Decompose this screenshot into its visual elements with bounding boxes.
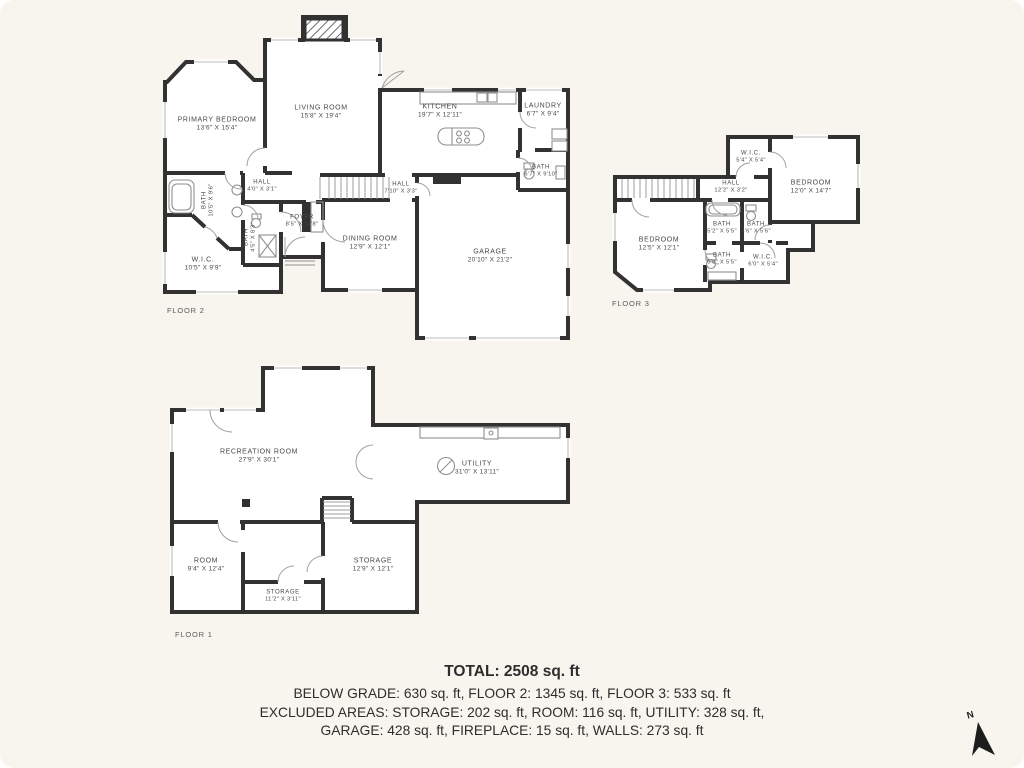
room-label-bedroom-right-f3: BEDROOM 12'0" X 14'7": [791, 180, 832, 195]
washer: [552, 129, 567, 139]
room-name: STORAGE: [353, 558, 394, 565]
room-name: PRIMARY BEDROOM: [178, 117, 257, 124]
room-label-storage-small: STORAGE 11'2" X 3'11": [265, 590, 301, 603]
room-label-bath-tub-f2: BATH 10'5" X 9'6": [202, 183, 215, 216]
summary-line-excluded: EXCLUDED AREAS: STORAGE: 202 sq. ft, ROO…: [0, 704, 1024, 723]
room-label-hall-left-f2: HALL 4'0" X 3'1": [247, 180, 277, 193]
room-dims: 4'5" X 8'3": [251, 222, 257, 252]
room-name: BEDROOM: [639, 237, 680, 244]
room-dims: 9'4" X 12'4": [188, 566, 225, 573]
room-dims: 6'0" X 5'4": [748, 262, 778, 268]
room-label-foyer: FOYER 8'5" X 11'8": [286, 215, 319, 228]
room-name: HALL: [714, 181, 747, 187]
room-label-dining-room: DINING ROOM 12'9" X 12'1": [343, 236, 398, 251]
room-name: W.I.C.: [185, 257, 222, 264]
room-name: HALL: [247, 180, 277, 186]
room-label-wic-top-f3: W.I.C. 5'4" X 5'4": [736, 151, 766, 164]
room-dims: 27'9" X 30'1": [220, 457, 298, 464]
room-label-room-f1: ROOM 9'4" X 12'4": [188, 558, 225, 573]
dryer: [552, 141, 567, 151]
floorplan-page: PRIMARY BEDROOM 13'6" X 15'4" LIVING ROO…: [0, 0, 1024, 768]
room-dims: 7'10" X 3'3": [384, 189, 417, 195]
room-dims: 12'5" X 12'1": [639, 245, 680, 252]
room-name: BEDROOM: [791, 180, 832, 187]
room-label-hall-right-f2: HALL 7'10" X 3'3": [384, 182, 417, 195]
room-label-bath-right-f2: BATH 6'7" X 9'10": [524, 165, 557, 178]
room-label-hall-f3: HALL 12'2" X 3'2": [714, 181, 747, 194]
toilet-tank: [746, 205, 756, 211]
floor2-caption: FLOOR 2: [167, 306, 205, 315]
entry-steps: [285, 261, 315, 265]
room-name: BATH: [707, 253, 737, 259]
room-dims: 5'6" X 5'5": [707, 260, 737, 266]
room-label-utility: UTILITY 31'0" X 13'11": [455, 461, 499, 476]
room-label-bath-small-f2: BATH 4'5" X 8'3": [244, 222, 257, 252]
floor1-plan: [172, 368, 568, 612]
room-dims: 31'0" X 13'11": [455, 469, 499, 476]
kitchen-sink: [477, 93, 487, 102]
floor1-caption: FLOOR 1: [175, 630, 213, 639]
room-name: ROOM: [188, 558, 225, 565]
room-dims: 12'9" X 12'1": [343, 244, 398, 251]
room-name: BATH: [707, 222, 737, 228]
room-label-storage-large: STORAGE 12'9" X 12'1": [353, 558, 394, 573]
room-label-bedroom-left-f3: BEDROOM 12'5" X 12'1": [639, 237, 680, 252]
room-label-primary-bedroom: PRIMARY BEDROOM 13'6" X 15'4": [178, 117, 257, 132]
room-name: BATH: [244, 222, 250, 252]
summary-line-garage: GARAGE: 428 sq. ft, FIREPLACE: 15 sq. ft…: [0, 722, 1024, 741]
room-dims: 4'0" X 3'1": [247, 187, 277, 193]
room-name: LAUNDRY: [524, 103, 562, 110]
room-label-laundry: LAUNDRY 6'7" X 9'4": [524, 103, 562, 118]
room-name: KITCHEN: [418, 104, 462, 111]
room-name: W.I.C.: [748, 255, 778, 261]
room-dims: 5'2" X 5'5": [707, 229, 737, 235]
floor1-outer-walls: [172, 368, 568, 612]
room-dims: 6'7" X 9'10": [524, 172, 557, 178]
room-dims: 11'2" X 3'11": [265, 597, 301, 603]
room-name: DINING ROOM: [343, 236, 398, 243]
room-label-wic-bottom-f3: W.I.C. 6'0" X 5'4": [748, 255, 778, 268]
room-dims: 3'6" X 5'6": [741, 229, 771, 235]
room-dims: 10'5" X 9'6": [209, 183, 215, 216]
room-dims: 5'4" X 5'4": [736, 158, 766, 164]
vanity: [708, 272, 736, 280]
support-post: [242, 499, 250, 507]
room-dims: 12'2" X 3'2": [714, 188, 747, 194]
room-name: BATH: [524, 165, 557, 171]
floor3-caption: FLOOR 3: [612, 299, 650, 308]
kitchen-sink: [488, 93, 497, 102]
room-name: BATH: [202, 183, 208, 216]
room-dims: 8'5" X 11'8": [286, 222, 319, 228]
room-label-wic-f2: W.I.C. 10'5" X 9'9": [185, 257, 222, 272]
summary-total: TOTAL: 2508 sq. ft: [0, 663, 1024, 681]
room-dims: 12'9" X 12'1": [353, 566, 394, 573]
sink: [232, 207, 242, 217]
room-label-bath-bottom-f3: BATH 5'6" X 5'5": [707, 253, 737, 266]
room-dims: 19'7" X 12'11": [418, 112, 462, 119]
room-label-living-room: LIVING ROOM 15'8" X 19'4": [294, 105, 347, 120]
room-name: STORAGE: [265, 590, 301, 596]
fireplace-hatch: [305, 19, 343, 40]
floor2-plan: [165, 17, 568, 338]
summary-line-floors: BELOW GRADE: 630 sq. ft, FLOOR 2: 1345 s…: [0, 685, 1024, 704]
garage-wall-chunk: [433, 175, 461, 184]
floorplan-svg: [0, 0, 1024, 768]
room-dims: 6'7" X 9'4": [524, 111, 562, 118]
room-dims: 13'6" X 15'4": [178, 125, 257, 132]
room-label-recreation-room: RECREATION ROOM 27'9" X 30'1": [220, 449, 298, 464]
room-name: RECREATION ROOM: [220, 449, 298, 456]
room-name: HALL: [384, 182, 417, 188]
sink: [232, 185, 242, 195]
room-label-kitchen: KITCHEN 19'7" X 12'11": [418, 104, 462, 119]
room-name: FOYER: [286, 215, 319, 221]
toilet: [747, 212, 756, 221]
area-summary: TOTAL: 2508 sq. ft BELOW GRADE: 630 sq. …: [0, 663, 1024, 741]
room-dims: 15'8" X 19'4": [294, 113, 347, 120]
utility-sink: [484, 428, 498, 439]
room-name: LIVING ROOM: [294, 105, 347, 112]
room-dims: 12'0" X 14'7": [791, 188, 832, 195]
room-label-bath-left-f3: BATH 5'2" X 5'5": [707, 222, 737, 235]
room-dims: 10'5" X 9'9": [185, 265, 222, 272]
room-dims: 20'10" X 21'2": [468, 257, 513, 264]
corner-door: [382, 71, 404, 88]
room-name: BATH: [741, 222, 771, 228]
room-name: W.I.C.: [736, 151, 766, 157]
room-name: UTILITY: [455, 461, 499, 468]
room-name: GARAGE: [468, 249, 513, 256]
room-label-bath-right-f3: BATH 3'6" X 5'6": [741, 222, 771, 235]
room-label-garage: GARAGE 20'10" X 21'2": [468, 249, 513, 264]
